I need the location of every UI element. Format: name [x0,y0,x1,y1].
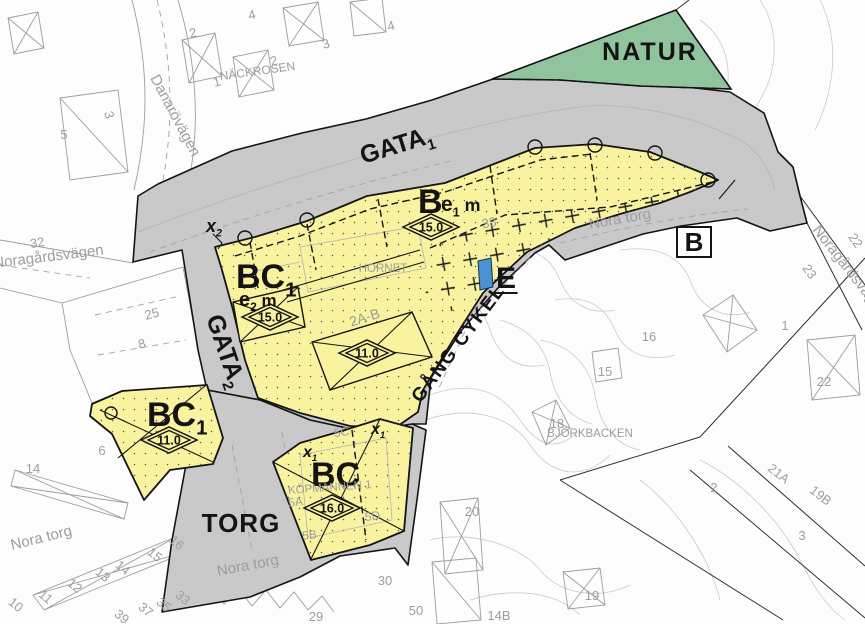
basemap-number: 32 [29,234,46,251]
zone-label-b: B [418,183,443,221]
basemap-number: 19 [585,588,599,603]
basemap-number: 1 [781,318,788,333]
basemap-number: 30 [378,573,392,588]
basemap-number: 3 [798,528,805,543]
height-value: 11.0 [355,347,379,361]
basemap-number: 20 [465,504,479,519]
zone-label-natur: NATUR [602,38,698,66]
basemap-number: 5 [60,127,67,142]
plan-map-svg: 15.015.011.011.016.0 NATURGATA1GATA2Be1 … [0,0,865,624]
basemap-number: 22 [817,374,831,389]
basemap-number: 2 [710,480,717,495]
basemap-number: 50 [409,603,423,618]
basemap-number: 29 [309,609,323,624]
basemap-number: 14B [487,608,510,623]
height-value: 15.0 [419,221,443,235]
basemap-number: 5C [333,424,350,440]
height-value: 11.0 [157,434,181,448]
height-value: 15.0 [258,311,282,325]
basemap-number: 5B [301,527,317,543]
basemap-number: 5A [287,494,303,510]
zone-label-b-boxed: B [685,227,704,257]
basemap-number: 18 [550,416,564,431]
basemap-number: 33 [480,214,497,232]
basemap-number: 15 [598,364,612,379]
height-value: 16.0 [320,502,344,516]
detaljplan-map: 15.015.011.011.016.0 NATURGATA1GATA2Be1 … [0,0,865,624]
zone-label-torg: TORG [202,508,281,538]
basemap-number: 16 [642,329,656,344]
quarter-hornet: HORNET [359,263,408,275]
basemap-number: 14 [26,461,40,476]
basemap-number: 6 [98,443,105,458]
basemap-number: 5D [364,508,381,524]
